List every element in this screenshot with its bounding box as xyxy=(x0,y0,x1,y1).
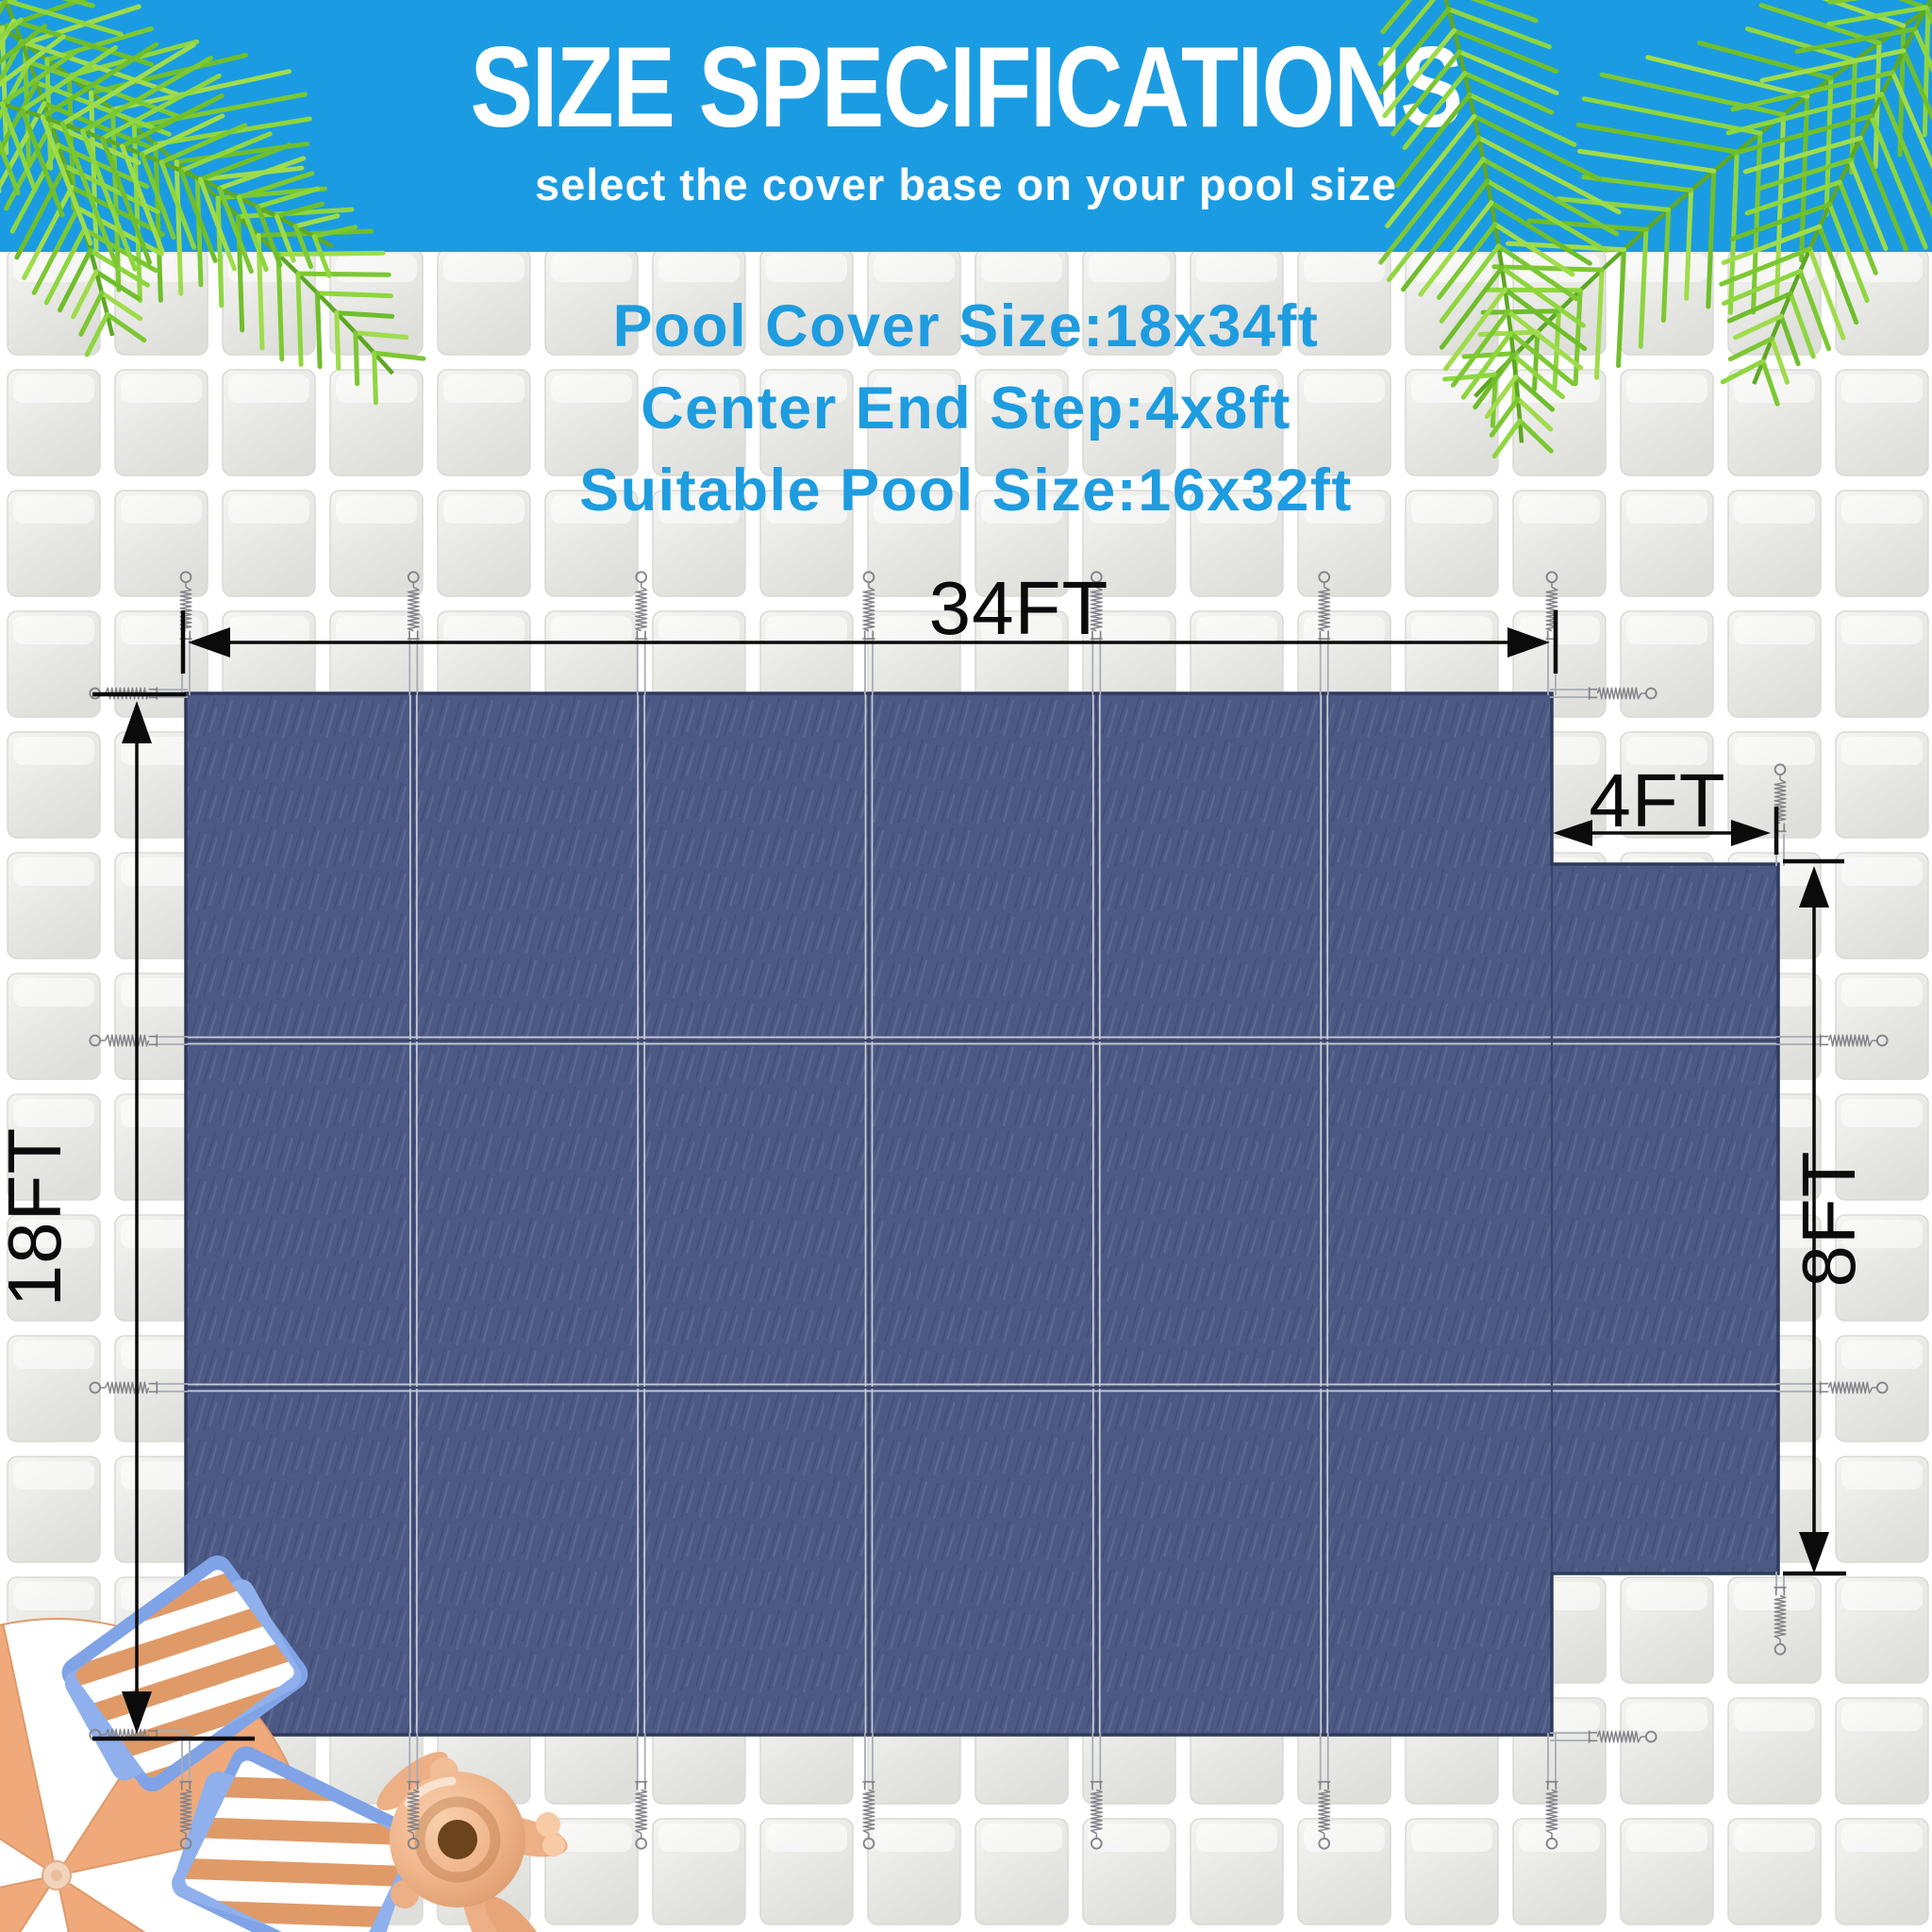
cover-width-label: 34FT xyxy=(929,566,1109,650)
spec-line-center-end-step: Center End Step:4x8ft xyxy=(0,368,1932,450)
pool-cover xyxy=(186,693,1778,1735)
spec-line-pool-cover-size: Pool Cover Size:18x34ft xyxy=(0,286,1932,368)
step-height-label: 8FT xyxy=(1787,1150,1871,1287)
spec-text-block: Pool Cover Size:18x34ft Center End Step:… xyxy=(0,286,1932,532)
infographic-canvas: SIZE SPECIFICATIONS select the cover bas… xyxy=(0,0,1932,1932)
spec-line-suitable-pool-size: Suitable Pool Size:16x32ft xyxy=(0,450,1932,532)
cover-height-label: 18FT xyxy=(0,1127,76,1307)
step-width-label: 4FT xyxy=(1589,758,1725,842)
